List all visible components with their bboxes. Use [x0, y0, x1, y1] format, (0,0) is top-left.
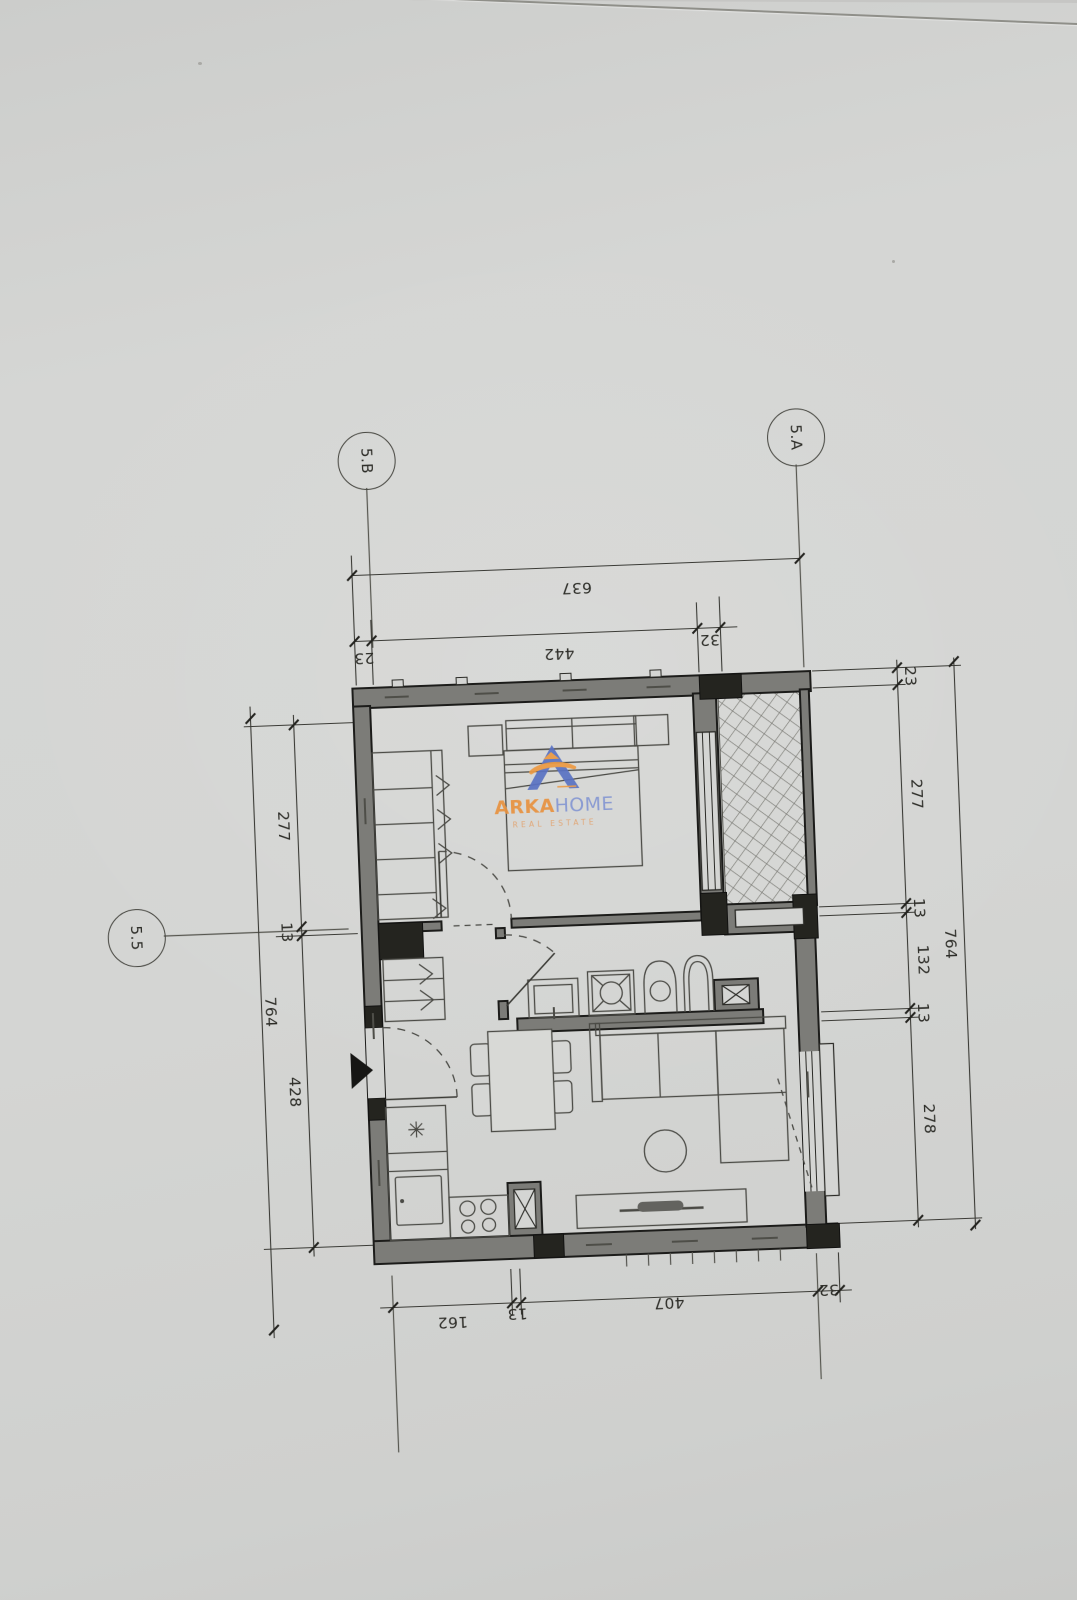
- dim-bottom-chain-2: 407: [654, 1293, 685, 1312]
- entry-door: [382, 1025, 457, 1100]
- wall-bath-west-top: [496, 928, 505, 938]
- bidet: [683, 955, 714, 1012]
- dim-right-chain-1: 277: [907, 778, 926, 809]
- dim-bottom-chain-3: 32: [818, 1280, 839, 1299]
- coffee-table: [644, 1129, 688, 1173]
- shower: [587, 970, 635, 1016]
- axis-label-5b: 5.B: [357, 448, 376, 475]
- counter-bottom: [449, 1195, 510, 1238]
- dim-right-chain-3: 132: [914, 944, 933, 975]
- dim-right-total: 764: [941, 928, 960, 959]
- dimension-ticks: [240, 547, 984, 1335]
- axis-lines: [147, 464, 834, 1460]
- washbasin: [528, 978, 579, 1020]
- axis-label-55: 5.5: [127, 925, 146, 951]
- balcony-sill: [735, 907, 804, 927]
- dimension-lines: [237, 532, 985, 1338]
- sink-symbol: [408, 1121, 425, 1138]
- watermark-brand-secondary: HOME: [554, 793, 614, 817]
- dim-left-chain-2: 428: [285, 1077, 304, 1108]
- cooktop: [460, 1199, 497, 1233]
- axis-label-5a: 5.A: [787, 424, 806, 451]
- dim-right-chain-4: 13: [914, 1002, 933, 1023]
- entry-opening: [365, 1028, 385, 1099]
- dim-right-chain-5: 278: [920, 1103, 939, 1134]
- hall-closet: [383, 957, 445, 1021]
- nightstand-right: [634, 715, 669, 746]
- dim-top-total: 637: [561, 578, 592, 597]
- balcony-hatch-floor: [718, 691, 808, 904]
- dim-bottom-chain-1: 13: [507, 1304, 528, 1323]
- watermark-brand-primary: ARKA: [494, 795, 555, 819]
- tv-stand: [576, 1189, 747, 1229]
- watermark-logo: ARKAHOME REAL ESTATE: [487, 741, 620, 831]
- floorplan-photo: 5.B 5.A 5.5 637 23 442 32 23 277 13 132 …: [0, 0, 1077, 1600]
- wardrobe: [372, 750, 454, 921]
- dim-bottom-chain-0: 162: [437, 1313, 468, 1332]
- opening-dashed: [454, 924, 496, 926]
- dim-left-chain-0: 277: [274, 811, 293, 842]
- dining-table: [488, 1029, 556, 1131]
- watermark-brand: ARKAHOME: [489, 794, 620, 818]
- dining-set: [470, 1029, 574, 1133]
- dim-left-chain-1: 13: [277, 922, 296, 943]
- floorplan-drawing: 5.B 5.A 5.5 637 23 442 32 23 277 13 132 …: [0, 0, 1077, 1600]
- arkahome-logo-icon: [523, 742, 583, 792]
- wall-bedroom-south-right: [511, 911, 701, 927]
- bathroom-door: [504, 933, 557, 1006]
- dim-right-chain-2: 13: [910, 898, 929, 919]
- bedroom-door: [439, 849, 512, 922]
- dim-right-chain-0: 23: [901, 666, 920, 687]
- dim-top-chain-0: 23: [354, 649, 375, 668]
- dim-top-chain-1: 442: [544, 644, 575, 663]
- sofa: [589, 1016, 790, 1167]
- dim-left-total: 764: [261, 996, 280, 1027]
- wall-bath-west-bottom: [498, 1001, 508, 1019]
- toilet: [643, 960, 677, 1013]
- dim-top-chain-2: 32: [699, 630, 720, 649]
